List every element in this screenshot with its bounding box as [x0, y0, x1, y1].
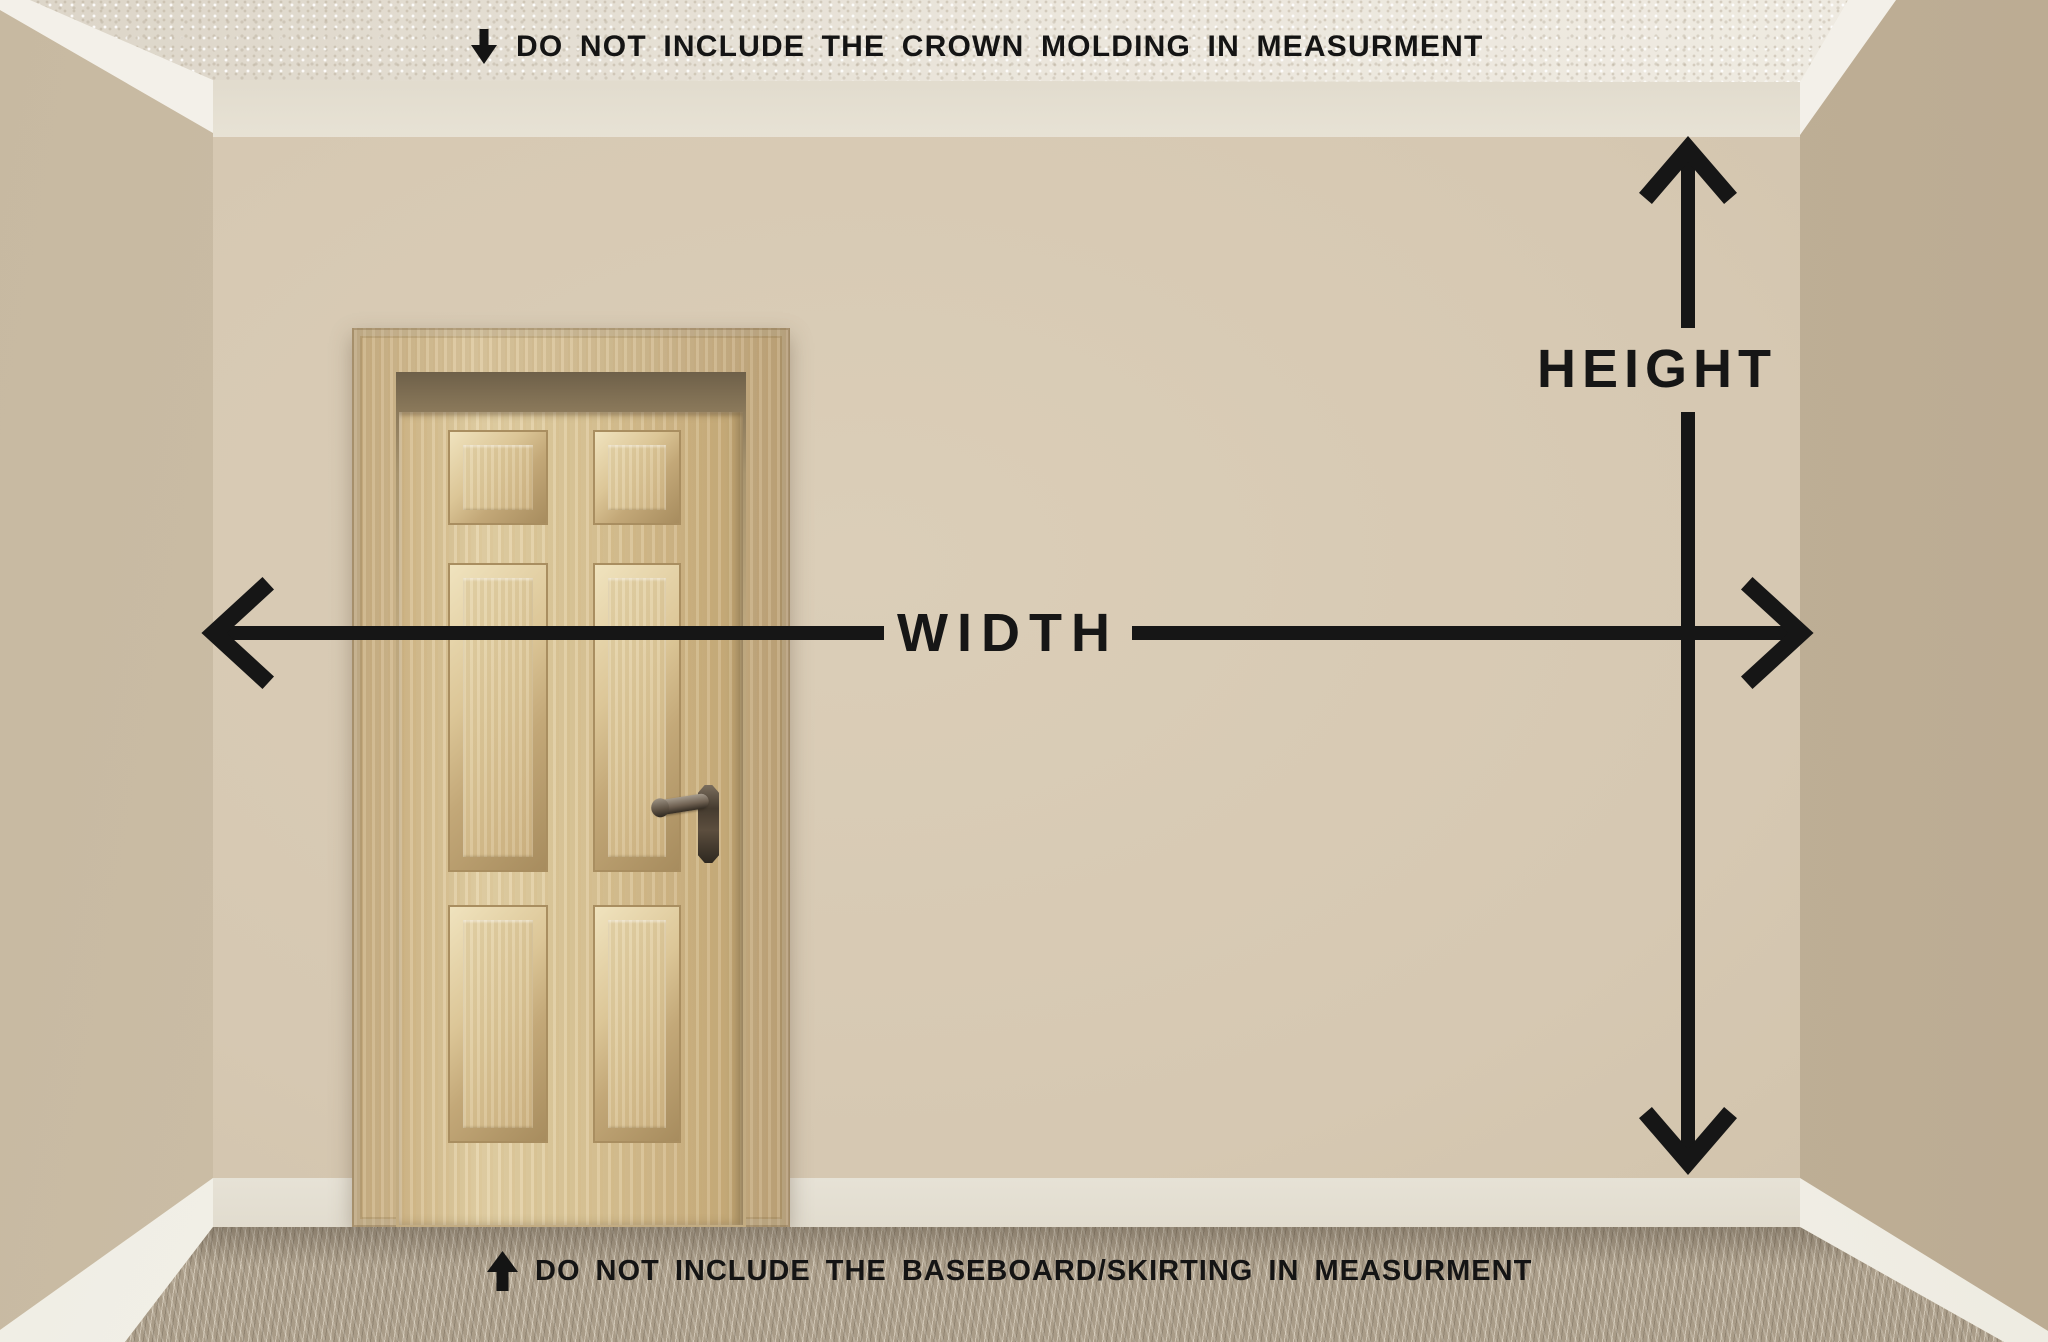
- top-note-text: DO NOT INCLUDE THE CROWN MOLDING IN MEAS…: [516, 30, 1484, 64]
- panel-field: [463, 445, 533, 510]
- bottom-note: DO NOT INCLUDE THE BASEBOARD/SKIRTING IN…: [487, 1251, 1532, 1291]
- door-panel: [448, 905, 548, 1143]
- arrow-down-icon: [471, 29, 497, 64]
- panel-field: [608, 445, 666, 510]
- door-panel: [593, 563, 681, 872]
- height-label: HEIGHT: [1537, 338, 1777, 400]
- arrow-up-icon: [487, 1251, 518, 1291]
- panel-field: [463, 578, 533, 857]
- door-panel: [593, 430, 681, 525]
- panel-field: [608, 920, 666, 1128]
- room-measurement-diagram: WIDTH HEIGHT DO NOT INCLUDE THE CROWN MO…: [0, 0, 2048, 1342]
- door-panel: [593, 905, 681, 1143]
- door-panel: [448, 563, 548, 872]
- door-slab: [399, 412, 743, 1225]
- width-label: WIDTH: [897, 602, 1119, 664]
- door-panel: [448, 430, 548, 525]
- panel-field: [463, 920, 533, 1128]
- door: [352, 328, 790, 1227]
- bottom-note-text: DO NOT INCLUDE THE BASEBOARD/SKIRTING IN…: [535, 1255, 1532, 1288]
- top-note: DO NOT INCLUDE THE CROWN MOLDING IN MEAS…: [471, 29, 1484, 64]
- back-wall: [0, 0, 2048, 1342]
